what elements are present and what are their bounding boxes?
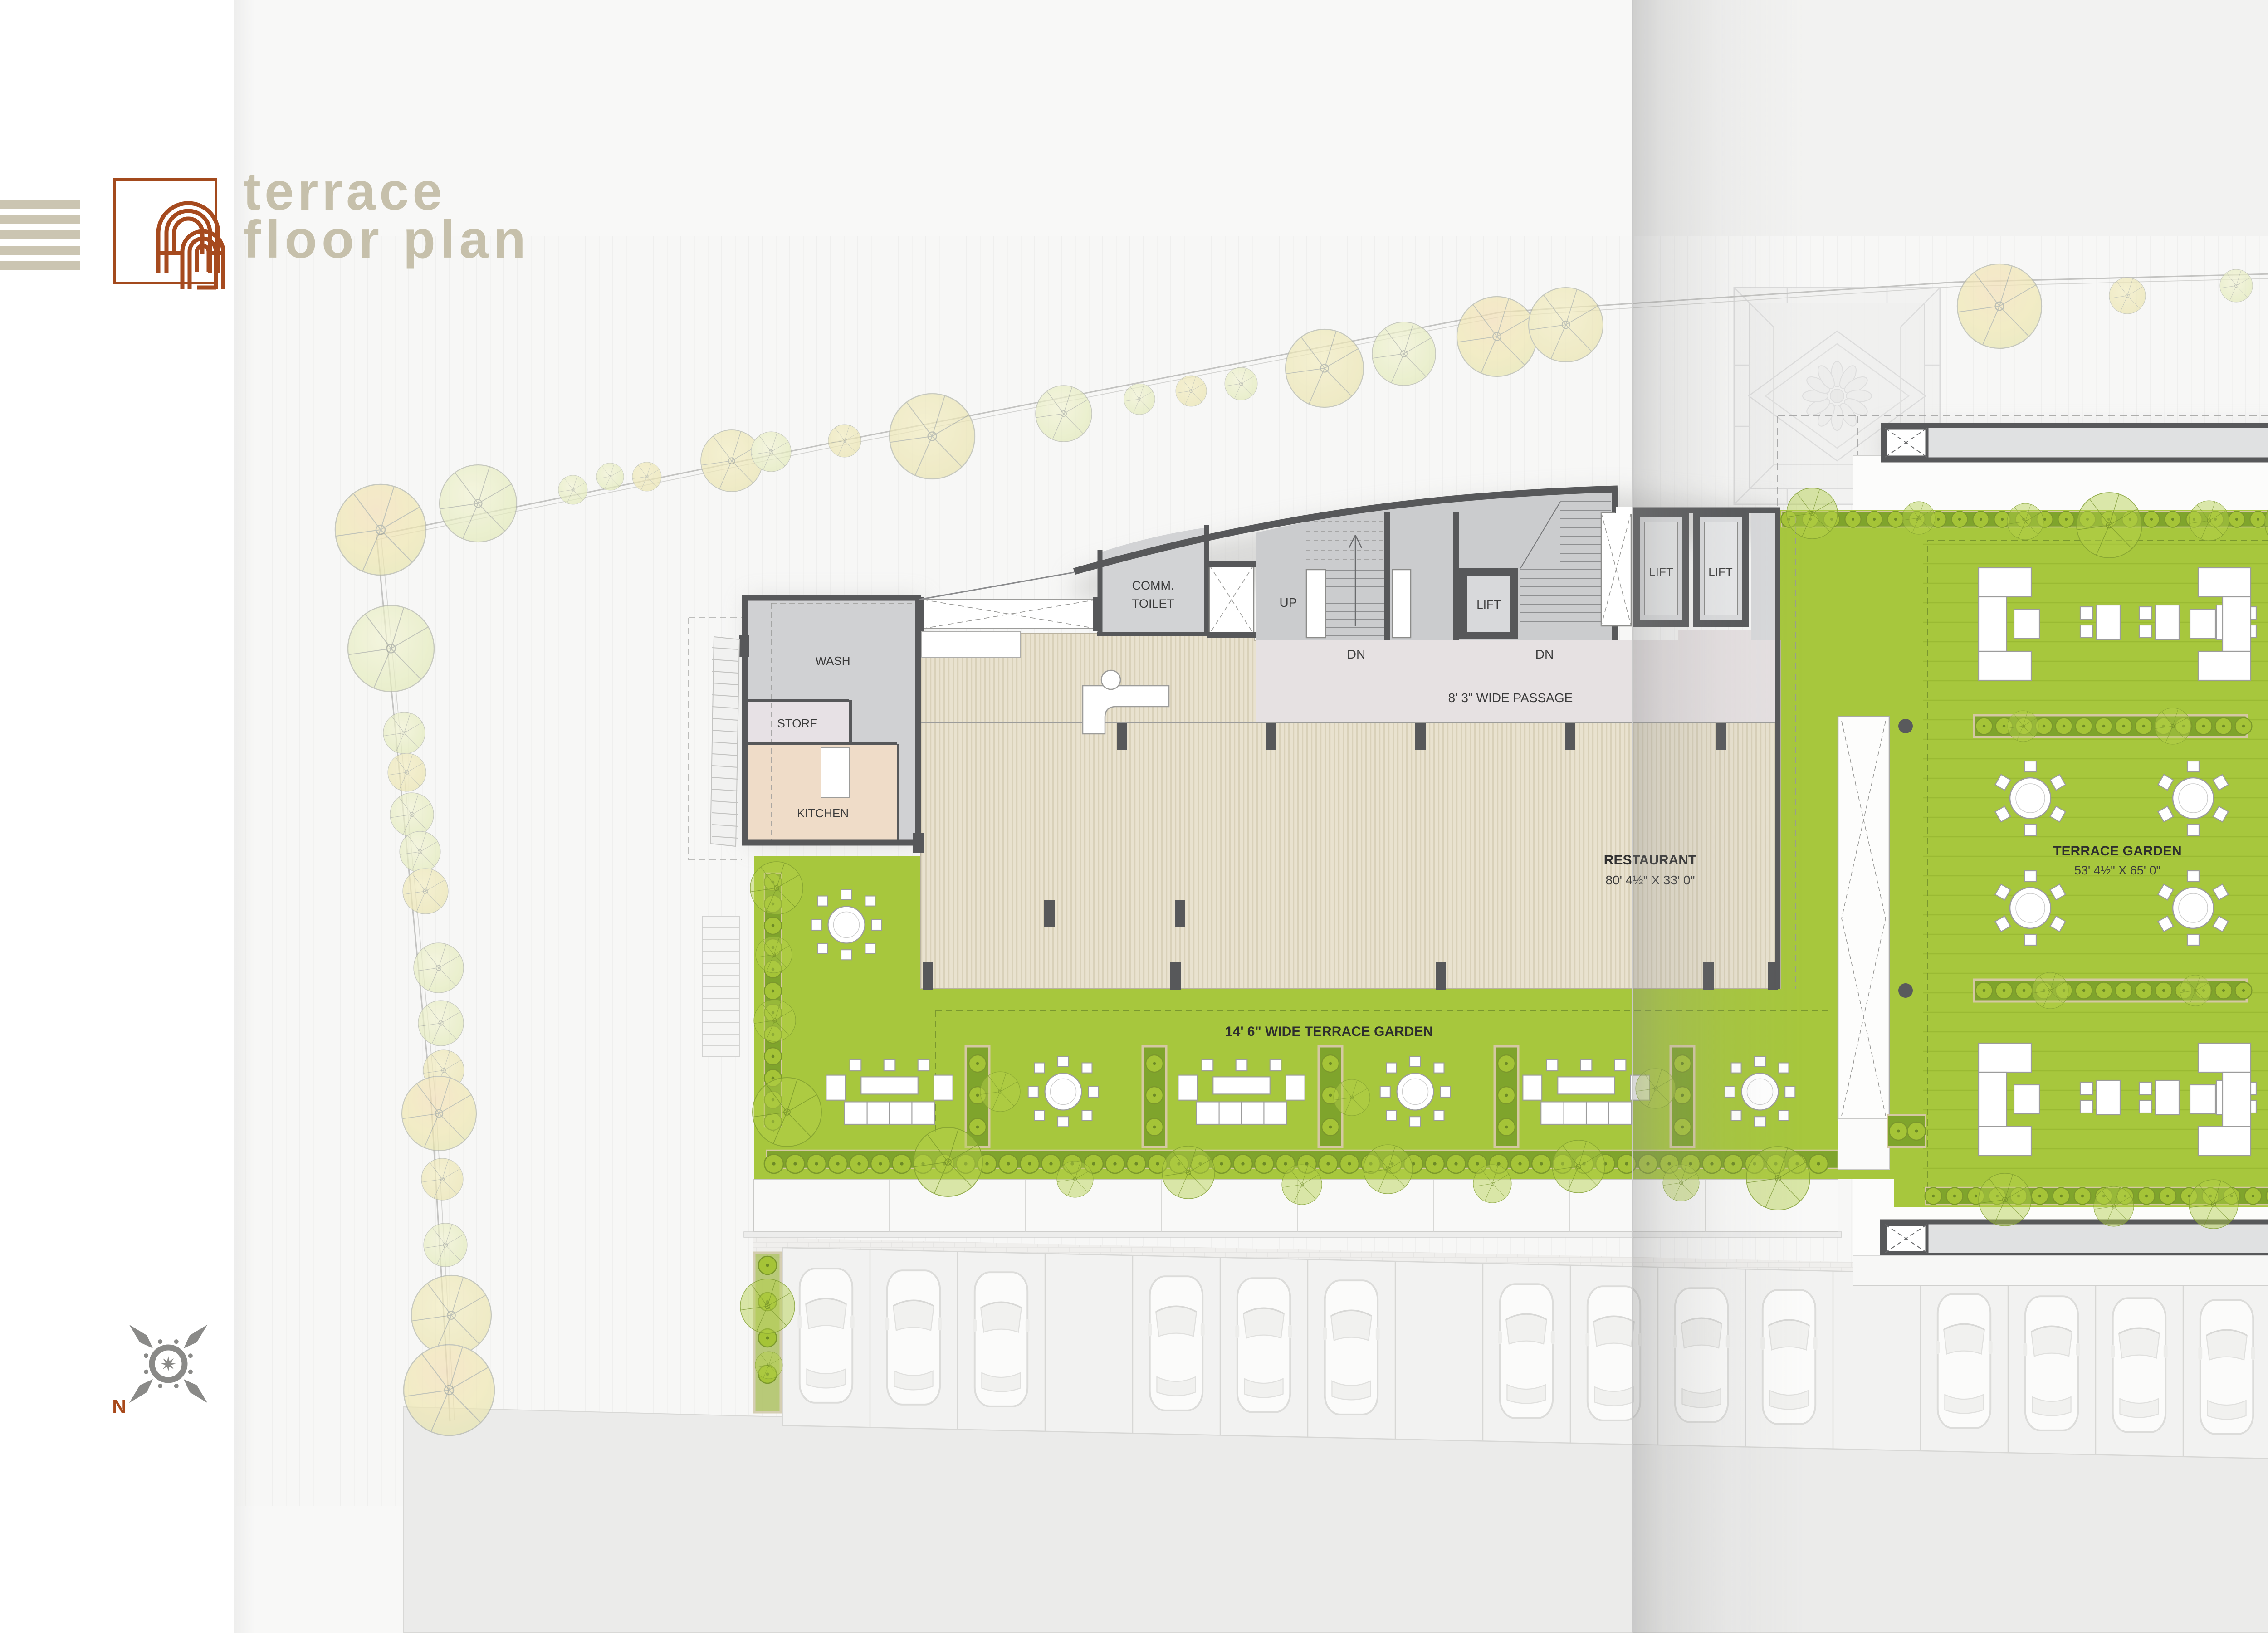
svg-text:floor plan: floor plan bbox=[243, 210, 530, 269]
svg-text:UP: UP bbox=[1280, 595, 1297, 610]
svg-text:DN: DN bbox=[1347, 647, 1365, 661]
svg-text:LIFT: LIFT bbox=[1476, 598, 1501, 611]
svg-text:COMM.: COMM. bbox=[1132, 579, 1174, 592]
svg-text:TOILET: TOILET bbox=[1132, 597, 1174, 610]
svg-text:53' 4½" X 65' 0": 53' 4½" X 65' 0" bbox=[2074, 864, 2160, 877]
svg-text:N: N bbox=[112, 1396, 127, 1418]
svg-text:KITCHEN: KITCHEN bbox=[797, 806, 849, 820]
svg-text:STORE: STORE bbox=[777, 717, 817, 730]
svg-text:14' 6" WIDE TERRACE GARDEN: 14' 6" WIDE TERRACE GARDEN bbox=[1225, 1024, 1433, 1039]
svg-text:TERRACE GARDEN: TERRACE GARDEN bbox=[2053, 844, 2181, 859]
svg-text:WASH: WASH bbox=[815, 654, 850, 668]
svg-text:8' 3" WIDE PASSAGE: 8' 3" WIDE PASSAGE bbox=[1448, 691, 1573, 705]
svg-text:DN: DN bbox=[1535, 647, 1554, 661]
